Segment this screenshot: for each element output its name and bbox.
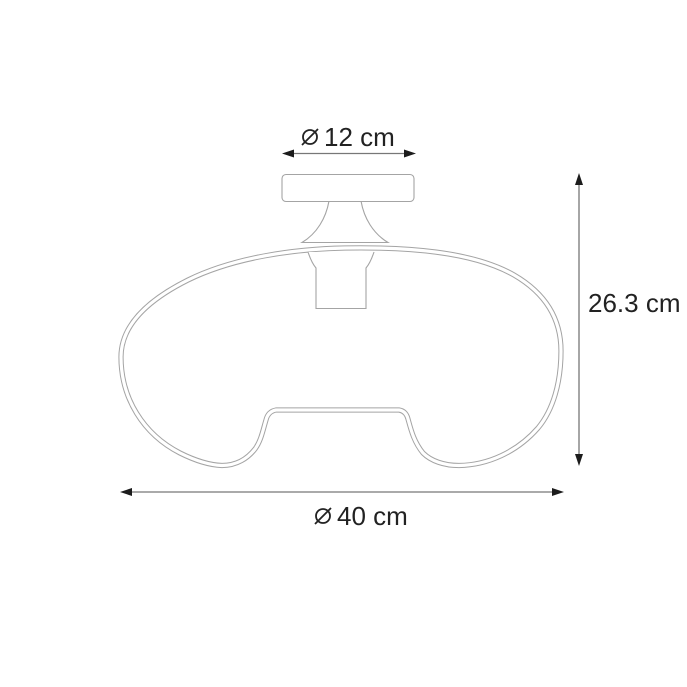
arrowhead-left-icon [120, 488, 132, 496]
arrowhead-left-icon [282, 150, 294, 158]
dimension-diagram: 12 cm 26.3 cm 40 cm [0, 0, 687, 687]
lamp-stem-cone [302, 201, 388, 243]
canopy-diameter-label: 12 cm [324, 122, 395, 152]
lamp-drawing [121, 175, 561, 466]
shade-diameter-label: 40 cm [337, 501, 408, 531]
arrowhead-up-icon [575, 173, 583, 185]
height-label: 26.3 cm [588, 288, 681, 318]
diameter-icon [302, 129, 318, 145]
canopy-diameter-dimension: 12 cm [282, 122, 416, 158]
diameter-icon [315, 508, 331, 524]
shade-diameter-dimension: 40 cm [120, 488, 564, 531]
height-dimension: 26.3 cm [575, 173, 681, 466]
arrowhead-right-icon [404, 150, 416, 158]
lamp-diagram-canvas: 12 cm 26.3 cm 40 cm [0, 0, 687, 687]
arrowhead-right-icon [552, 488, 564, 496]
lamp-canopy-plate [282, 175, 414, 202]
arrowhead-down-icon [575, 454, 583, 466]
lamp-socket-cylinder [308, 252, 374, 309]
